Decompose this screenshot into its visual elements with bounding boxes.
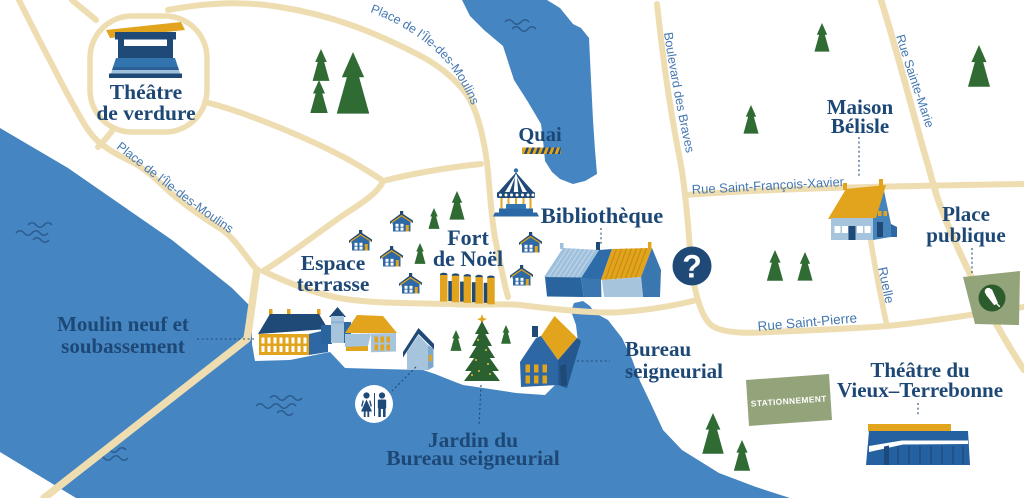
svg-text:Moulin neuf et: Moulin neuf et: [57, 312, 189, 336]
svg-text:terrasse: terrasse: [297, 272, 370, 296]
svg-text:de Noël: de Noël: [433, 246, 503, 271]
svg-text:Bélisle: Bélisle: [831, 114, 889, 138]
svg-text:Place de l’Île-des-Moulins: Place de l’Île-des-Moulins: [369, 2, 482, 107]
svg-text:de verdure: de verdure: [96, 101, 195, 125]
svg-text:Bibliothèque: Bibliothèque: [541, 203, 664, 228]
svg-text:publique: publique: [926, 223, 1005, 247]
svg-text:Rue Saint-François-Xavier: Rue Saint-François-Xavier: [691, 174, 845, 197]
svg-text:Vieux–Terrebonne: Vieux–Terrebonne: [837, 378, 1003, 402]
svg-text:seigneurial: seigneurial: [625, 359, 723, 383]
svg-text:Bureau seigneurial: Bureau seigneurial: [386, 446, 559, 470]
svg-text:?: ?: [682, 249, 702, 285]
svg-text:Quai: Quai: [518, 124, 562, 146]
svg-text:soubassement: soubassement: [61, 334, 185, 358]
svg-text:Bureau: Bureau: [625, 337, 691, 361]
